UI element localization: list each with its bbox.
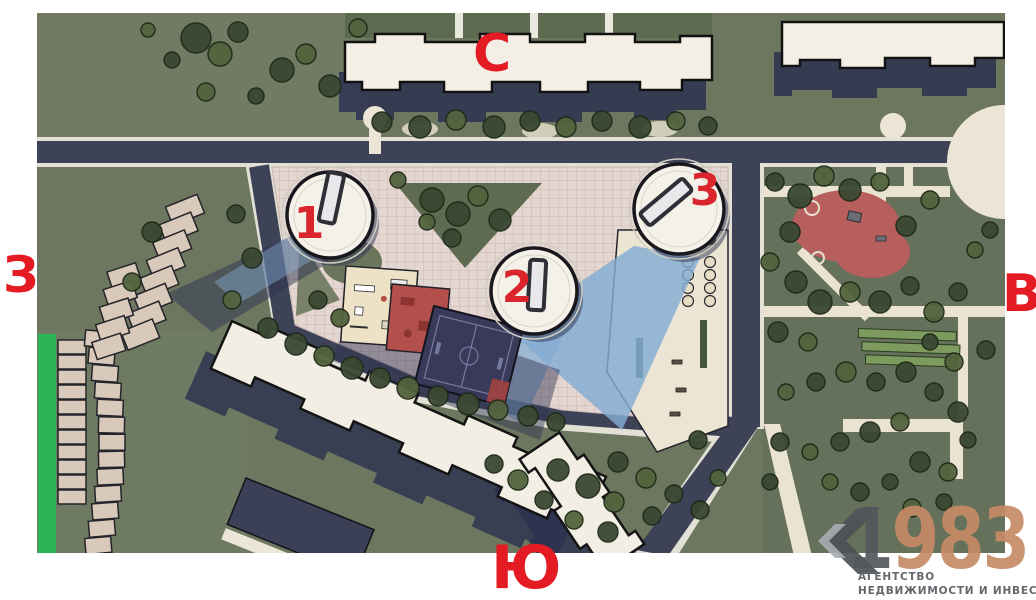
tree	[370, 368, 390, 388]
tree	[489, 209, 511, 231]
garage-box	[58, 370, 86, 384]
tree	[667, 112, 685, 130]
tree	[691, 501, 709, 519]
road-east	[732, 141, 760, 427]
tree	[839, 179, 861, 201]
tree	[699, 117, 717, 135]
tree	[967, 242, 983, 258]
garage-box	[94, 382, 121, 400]
tree	[319, 75, 341, 97]
tree	[788, 184, 812, 208]
garage-box	[85, 536, 112, 554]
tree	[762, 474, 778, 490]
tree	[799, 333, 817, 351]
tree	[446, 202, 470, 226]
tree	[860, 422, 880, 442]
tree	[948, 402, 968, 422]
tree	[771, 433, 789, 451]
tree	[871, 173, 889, 191]
building-north	[339, 34, 712, 122]
green-strip	[38, 334, 56, 553]
tree	[285, 333, 307, 355]
tree	[556, 117, 576, 137]
tower-2-number: 2	[502, 262, 533, 313]
garage-box	[58, 460, 86, 474]
tree	[420, 188, 444, 212]
tree	[807, 373, 825, 391]
tree	[891, 413, 909, 431]
compass-west-label: З	[3, 246, 39, 304]
tree	[778, 384, 794, 400]
tree	[945, 353, 963, 371]
tree	[409, 116, 431, 138]
tree	[457, 393, 479, 415]
tree	[520, 111, 540, 131]
tree	[592, 111, 612, 131]
garage-box	[98, 417, 124, 434]
garage-box	[58, 385, 86, 399]
tree	[141, 23, 155, 37]
tower-1-number: 1	[294, 198, 325, 249]
tree	[608, 452, 628, 472]
tree	[508, 470, 528, 490]
tree	[785, 271, 807, 293]
tree	[939, 463, 957, 481]
tree	[314, 346, 334, 366]
tree	[822, 474, 838, 490]
garage-box	[95, 485, 122, 503]
tree	[227, 205, 245, 223]
tree	[867, 373, 885, 391]
tree	[882, 474, 898, 490]
tree	[349, 19, 367, 37]
tree	[468, 186, 488, 206]
tree	[768, 322, 788, 342]
tree	[248, 88, 264, 104]
watermark: 1983 АГЕНТСТВО НЕДВИЖИМОСТИ И ИНВЕСТИЦИЙ	[818, 491, 1036, 597]
tree	[390, 172, 406, 188]
garage-box	[58, 355, 86, 369]
garage-box	[58, 340, 86, 354]
tree	[643, 507, 661, 525]
garage-box	[98, 451, 124, 468]
garage-box	[88, 519, 115, 537]
watermark-agency-line2: НЕДВИЖИМОСТИ И ИНВЕСТИЦИЙ	[858, 584, 1036, 597]
tree	[331, 309, 349, 327]
tower-3-number: 3	[690, 165, 721, 216]
park-mini-plaza	[880, 113, 906, 139]
tree	[547, 413, 565, 431]
tree	[535, 491, 553, 509]
tree	[197, 83, 215, 101]
tree	[397, 377, 419, 399]
tree	[228, 22, 248, 42]
tree	[831, 433, 849, 451]
tree	[485, 455, 503, 473]
tree	[960, 432, 976, 448]
building-northeast	[774, 22, 1004, 98]
tree	[808, 290, 832, 314]
site-plan: 1 2 3 С З В Ю 1983	[0, 0, 1036, 600]
tree	[977, 341, 995, 359]
garage-box	[92, 502, 119, 520]
tree	[665, 485, 683, 503]
tree	[604, 492, 624, 512]
tree	[142, 222, 162, 242]
compass-north-label: С	[473, 24, 511, 84]
tree	[208, 42, 232, 66]
tree	[982, 222, 998, 238]
tree	[766, 173, 784, 191]
garage-box	[58, 475, 86, 489]
tree	[901, 277, 919, 295]
garage-box	[58, 445, 86, 459]
tree	[949, 283, 967, 301]
tree	[814, 166, 834, 186]
watermark-agency-line1: АГЕНТСТВО	[858, 571, 935, 583]
tree	[372, 112, 392, 132]
tree	[840, 282, 860, 302]
garage-box	[99, 434, 125, 450]
tree	[164, 52, 180, 68]
tree	[896, 362, 916, 382]
tree	[802, 444, 818, 460]
tree	[924, 302, 944, 322]
tree	[636, 468, 656, 488]
garage-box	[58, 415, 86, 429]
tree	[869, 291, 891, 313]
compass-east-label: В	[1002, 264, 1036, 324]
tree	[443, 229, 461, 247]
tree	[710, 470, 726, 486]
tree	[223, 291, 241, 309]
tree	[242, 248, 262, 268]
tree	[761, 253, 779, 271]
tree	[921, 191, 939, 209]
tree	[518, 406, 538, 426]
garage-box	[58, 490, 86, 504]
tree	[598, 522, 618, 542]
tree	[483, 116, 505, 138]
tree	[270, 58, 294, 82]
tree	[419, 214, 435, 230]
tree	[896, 216, 916, 236]
tree	[446, 110, 466, 130]
compass-south-label: Ю	[491, 533, 561, 600]
tree	[689, 431, 707, 449]
tree	[309, 291, 327, 309]
road-top	[37, 141, 1005, 163]
tree	[428, 386, 448, 406]
tree	[925, 383, 943, 401]
garage-box	[58, 430, 86, 444]
tree	[910, 452, 930, 472]
tree	[629, 116, 651, 138]
tree	[123, 273, 141, 291]
tree	[488, 400, 508, 420]
tree	[922, 334, 938, 350]
tree	[258, 318, 278, 338]
tree	[565, 511, 583, 529]
garage-box	[97, 399, 124, 416]
garage-box	[97, 468, 124, 485]
tree	[780, 222, 800, 242]
tree	[341, 357, 363, 379]
tree	[296, 44, 316, 64]
garage-box	[91, 364, 118, 382]
site-plan-svg: 1 2 3 С З В Ю 1983	[0, 0, 1036, 600]
tree	[836, 362, 856, 382]
garage-box	[58, 400, 86, 414]
tree	[547, 459, 569, 481]
tree	[576, 474, 600, 498]
tree	[181, 23, 211, 53]
